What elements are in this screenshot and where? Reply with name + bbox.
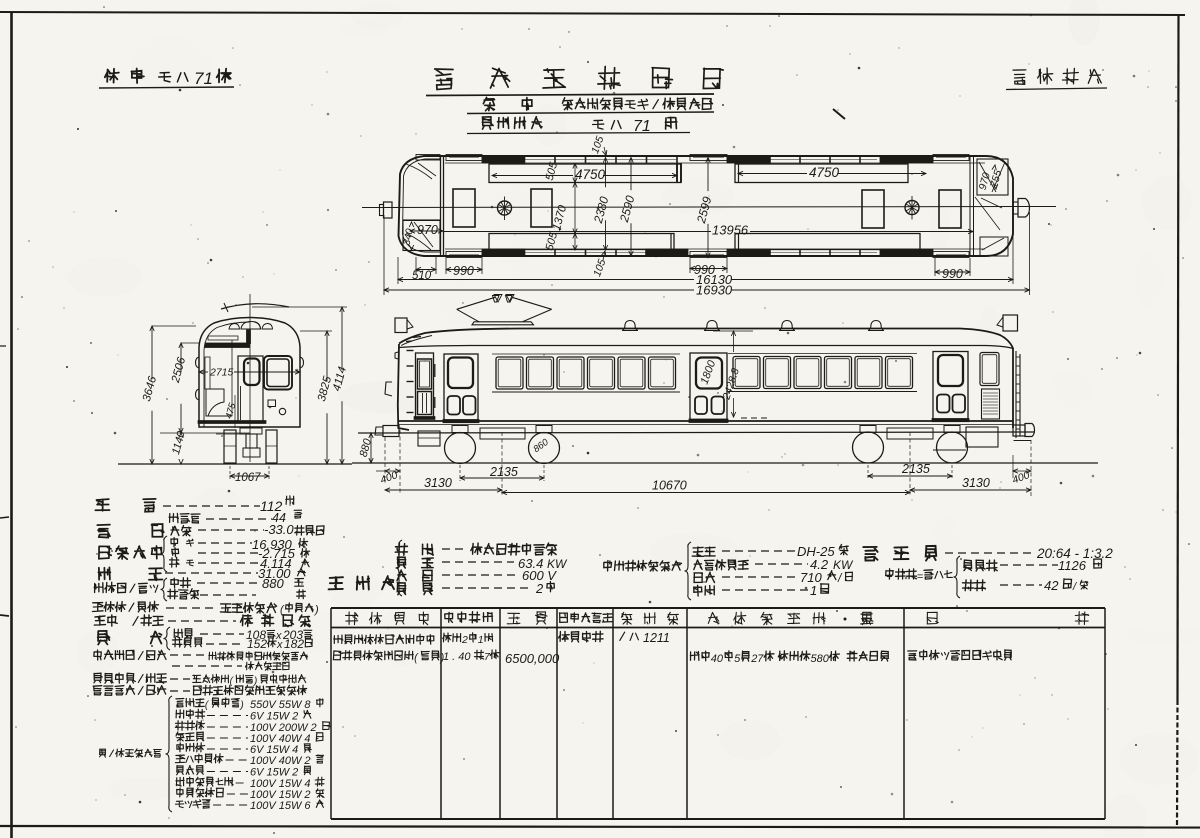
svg-text:550V 55W 8: 550V 55W 8 [250, 699, 311, 711]
svg-text:40: 40 [711, 653, 724, 665]
svg-text:): ) [239, 700, 243, 711]
svg-text:KW: KW [833, 558, 854, 572]
svg-text:100V 15W 6: 100V 15W 6 [250, 800, 311, 812]
svg-text:1 . 40: 1 . 40 [443, 651, 471, 663]
svg-text:6V 15W 2: 6V 15W 2 [250, 711, 298, 723]
svg-text:x: x [276, 639, 283, 651]
svg-text:2135: 2135 [901, 462, 930, 476]
svg-text:3130: 3130 [962, 476, 990, 490]
svg-text:3130: 3130 [424, 476, 452, 490]
svg-text:4750: 4750 [575, 167, 606, 182]
svg-text:990: 990 [453, 264, 474, 278]
svg-text:510: 510 [412, 270, 432, 282]
svg-text:100V 40W 2: 100V 40W 2 [250, 755, 311, 767]
svg-text:42: 42 [1044, 578, 1059, 593]
svg-text:1126: 1126 [1058, 558, 1087, 573]
svg-text:2: 2 [535, 581, 544, 596]
svg-text:880: 880 [262, 576, 284, 591]
svg-text:6V 15W 2: 6V 15W 2 [250, 767, 298, 779]
svg-text:1067: 1067 [235, 472, 261, 484]
svg-text:6500,000: 6500,000 [505, 651, 560, 666]
svg-text:152: 152 [247, 637, 267, 651]
svg-text:1211: 1211 [643, 631, 670, 645]
svg-text:2715: 2715 [209, 367, 234, 379]
svg-text:2: 2 [461, 634, 468, 646]
svg-text:182: 182 [284, 637, 304, 651]
svg-text:1: 1 [810, 583, 817, 598]
svg-text:990: 990 [942, 267, 963, 281]
svg-text:13956: 13956 [712, 223, 749, 238]
svg-text:970: 970 [417, 223, 438, 237]
svg-text:16930: 16930 [696, 283, 733, 298]
svg-text:4750: 4750 [809, 165, 840, 180]
svg-text:71: 71 [194, 69, 213, 88]
svg-text:5: 5 [734, 653, 741, 665]
svg-text:1: 1 [478, 634, 484, 646]
svg-text:=: = [917, 571, 924, 583]
svg-text:580: 580 [811, 653, 830, 665]
svg-text:10670: 10670 [652, 479, 687, 493]
svg-text:27: 27 [750, 653, 764, 665]
svg-text:2135: 2135 [489, 465, 518, 479]
svg-text:-33.0: -33.0 [264, 522, 294, 537]
